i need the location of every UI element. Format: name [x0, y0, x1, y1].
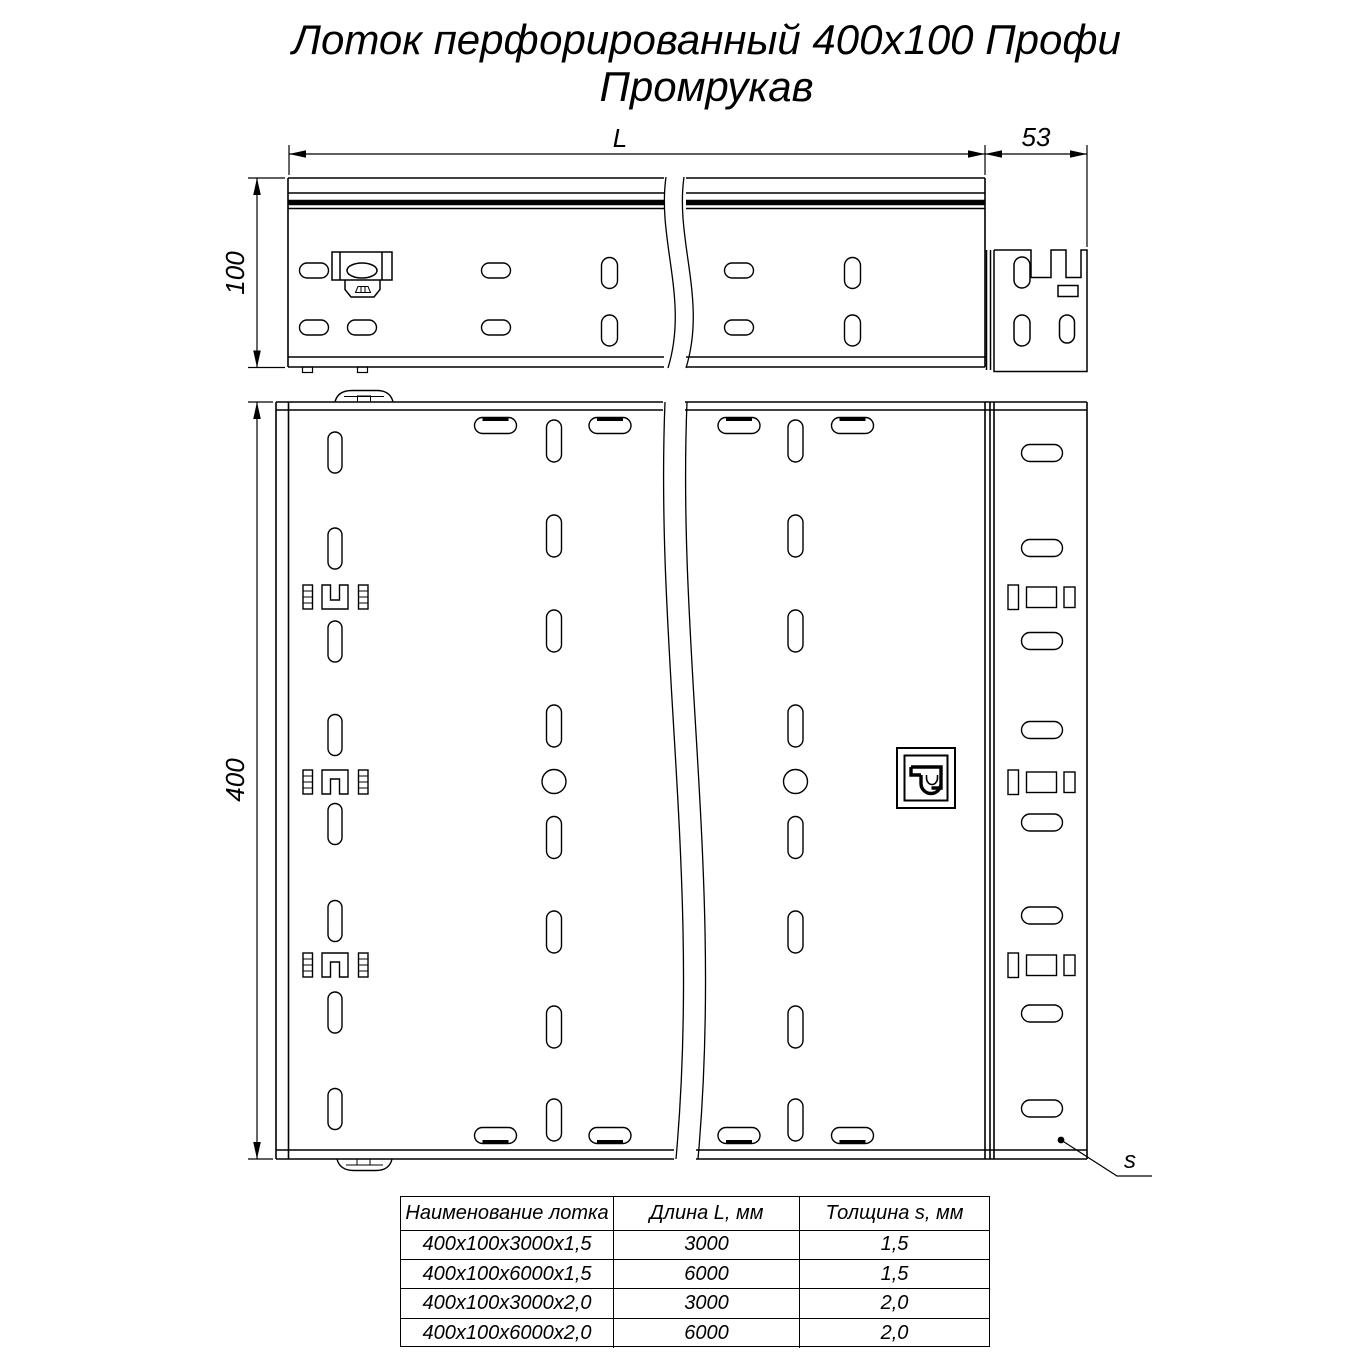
table-cell: 400х100х3000х1,5 [401, 1231, 614, 1260]
latch-mark [356, 287, 371, 293]
slot-hole [328, 1089, 342, 1130]
rect-cutout [1064, 955, 1075, 976]
oval-hole [1022, 722, 1063, 739]
table-cell: 400х100х6000х1,5 [401, 1260, 614, 1289]
slot-hole [788, 420, 803, 462]
round-hole [542, 770, 566, 794]
rect-cutout [1027, 772, 1057, 793]
technical-drawing: L 53 100 400 [0, 0, 1363, 1363]
foot-tab [303, 367, 313, 373]
end-view [987, 250, 1088, 372]
slot-hole [547, 817, 562, 859]
plan-outline [276, 402, 1087, 1159]
oval-hole [1022, 540, 1063, 557]
table-cell: 3000 [614, 1289, 800, 1318]
bracket-cutout [322, 953, 348, 977]
slot-hole [547, 610, 562, 652]
oval-hole [300, 320, 329, 335]
slot-hole [1014, 257, 1030, 288]
rect-cutout [1008, 953, 1019, 978]
side-view [288, 177, 1087, 373]
oval-hole [725, 263, 754, 278]
slot-hole [602, 315, 618, 346]
rect-cutout [1008, 585, 1019, 610]
table-header-cell: Длина L, мм [614, 1197, 800, 1231]
slot-hole [547, 911, 562, 953]
slot-hole [547, 705, 562, 747]
oval-hole [482, 320, 511, 335]
oval-hole [300, 263, 329, 278]
break-line [664, 177, 693, 368]
slot-hole [1060, 315, 1075, 343]
dim-label-53: 53 [1022, 122, 1051, 152]
table-header-cell: Наименование лотка [401, 1197, 614, 1231]
slot-hole [1014, 315, 1030, 346]
drawing-sheet: Лоток перфорированный 400х100 Профи Пром… [0, 0, 1363, 1363]
table-cell: 1,5 [800, 1260, 989, 1289]
slot-hole [328, 432, 342, 473]
table-cell: 6000 [614, 1260, 800, 1289]
bracket-cutout [322, 585, 348, 609]
table-header-cell: Толщина s, мм [800, 1197, 989, 1231]
spec-table: Наименование лотка Длина L, мм Толщина s… [400, 1196, 990, 1347]
round-hole [784, 770, 808, 794]
slot-hole [328, 992, 342, 1033]
plan-view-holes [303, 418, 1075, 1144]
slot-hole [788, 817, 803, 859]
oval-hole [482, 263, 511, 278]
slot-hole [788, 911, 803, 953]
oval-hole [1022, 1005, 1063, 1022]
table-cell: 400х100х3000х2,0 [401, 1289, 614, 1318]
dimension-400: 400 [220, 402, 273, 1159]
oval-hole [348, 320, 377, 335]
din-latch-side [332, 252, 392, 297]
break-line [664, 402, 706, 1159]
dimension-L: L [289, 123, 985, 175]
table-cell: 6000 [614, 1319, 800, 1348]
oval-hole [725, 320, 754, 335]
thickness-leader: s [1058, 1137, 1152, 1176]
foot-tab [358, 367, 368, 373]
slot-hole [602, 258, 618, 289]
rect-cutout [1064, 587, 1075, 608]
oval-hole [1022, 814, 1063, 831]
slot-hole [547, 420, 562, 462]
dim-label-L: L [613, 123, 627, 153]
rect-cutout [1027, 587, 1057, 608]
dimension-53: 53 [985, 122, 1087, 247]
oval-hole [1022, 1100, 1063, 1117]
slot-hole [547, 1006, 562, 1048]
dimension-100: 100 [220, 178, 285, 368]
slot-hole [328, 804, 342, 845]
slot-hole [845, 315, 861, 346]
slot-hole [788, 610, 803, 652]
dim-label-100: 100 [220, 251, 250, 295]
dim-label-400: 400 [220, 758, 250, 802]
side-view-holes [300, 258, 861, 347]
din-latch-top-edge [335, 391, 393, 403]
slot-hole [328, 715, 342, 756]
slot-hole [328, 621, 342, 662]
table-cell: 1,5 [800, 1231, 989, 1260]
rect-cutout [1064, 772, 1075, 793]
slot-hole [788, 705, 803, 747]
din-latch-bottom-edge [337, 1159, 392, 1171]
dim-label-s: s [1124, 1147, 1136, 1174]
slot-hole [547, 515, 562, 557]
rect-cutout [1058, 286, 1078, 297]
slot-hole [547, 1099, 562, 1141]
slot-hole [845, 258, 861, 289]
table-cell: 3000 [614, 1231, 800, 1260]
slot-hole [328, 528, 342, 569]
slot-hole [788, 1006, 803, 1048]
table-cell: 2,0 [800, 1289, 989, 1318]
slot-hole [788, 1099, 803, 1141]
rect-cutout [1008, 770, 1019, 795]
oval-hole [1022, 633, 1063, 650]
rect-cutout [1027, 955, 1057, 976]
bracket-cutout [322, 770, 348, 794]
oval-hole [1022, 907, 1063, 924]
table-cell: 2,0 [800, 1319, 989, 1348]
plan-view [276, 391, 1087, 1171]
table-cell: 400х100х6000х2,0 [401, 1319, 614, 1348]
slot-hole [788, 515, 803, 557]
oval-hole [1022, 445, 1063, 462]
slot-hole [328, 901, 342, 942]
promrukav-logo [897, 748, 955, 808]
